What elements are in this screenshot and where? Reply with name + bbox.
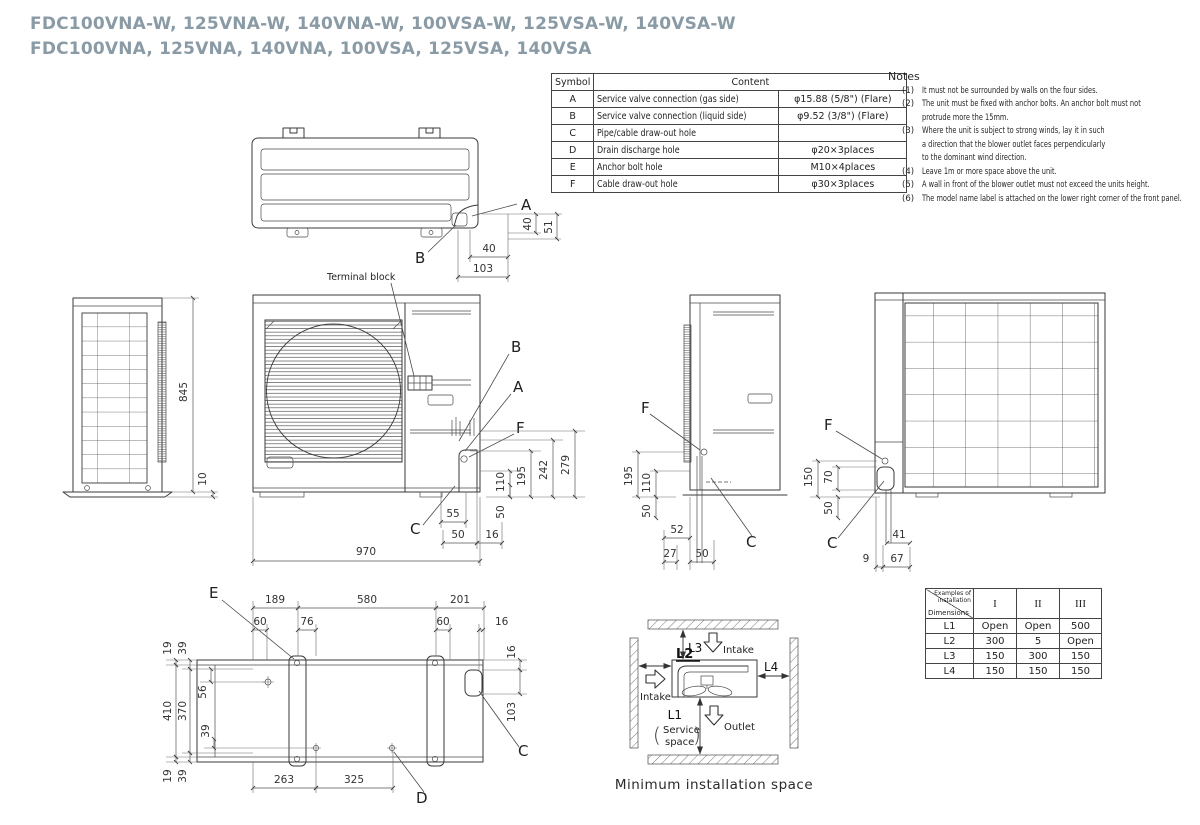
installation-table: Examples of installation Dimensions I II…	[925, 588, 1102, 679]
dim-150: 150	[803, 467, 815, 487]
dim-51: 51	[543, 220, 555, 233]
service-space-label-2: space	[665, 737, 694, 748]
value-cell: 300	[974, 634, 1017, 649]
dim-76: 76	[300, 616, 314, 628]
value-cell: 150	[1060, 649, 1102, 664]
outlet-arrow-icon	[705, 706, 723, 725]
top-tab-left	[283, 128, 304, 138]
left-side-view: 845 10	[63, 298, 218, 497]
notes-title: Notes	[888, 70, 1200, 84]
right-side-view: F C 195 110 50 52 27 50	[623, 295, 787, 570]
table-row: E Anchor bolt hole M10×4places	[552, 159, 907, 176]
value-cell: Open	[974, 619, 1017, 634]
dim-52: 52	[670, 524, 683, 536]
side-grille	[82, 313, 147, 483]
dim-410: 410	[162, 701, 174, 721]
dim-50: 50	[641, 504, 653, 517]
value-cell: 150	[1017, 664, 1060, 679]
content-cell: Pipe/cable draw-out hole	[594, 125, 779, 142]
wall-top	[648, 620, 778, 629]
content-col-header: Content	[594, 74, 907, 91]
outlet-label: Outlet	[724, 722, 755, 733]
col-header-1: I	[974, 589, 1017, 619]
top-tab-right	[419, 128, 440, 138]
label-f: F	[641, 399, 650, 417]
dim-580: 580	[357, 594, 377, 606]
fan-blade	[707, 684, 732, 697]
symbol-col-header: Symbol	[552, 74, 594, 91]
dim-103: 103	[473, 263, 493, 275]
dim-279: 279	[560, 455, 572, 475]
label-b: B	[511, 338, 521, 356]
table-row: L2 300 5 Open	[926, 634, 1102, 649]
corner-bottom-label: Dimensions	[928, 609, 969, 617]
bottom-body	[197, 660, 483, 762]
corner-top-label2: installation	[938, 597, 971, 604]
symbol-cell: A	[552, 91, 594, 108]
dim-60a: 60	[253, 616, 266, 628]
dim-10: 10	[197, 472, 209, 485]
label-l3: L3	[688, 641, 702, 655]
dim-263: 263	[274, 774, 294, 786]
label-a: A	[521, 196, 532, 214]
service-paren-open: (	[653, 723, 661, 747]
intake-left-arrow-icon	[646, 670, 665, 688]
fan-grille	[265, 320, 402, 462]
dim-50v: 50	[495, 505, 507, 518]
note-item: (2) The unit must be fixed with anchor b…	[888, 98, 1200, 125]
notes: Notes (1) It must not be surrounded by w…	[888, 70, 1200, 206]
dim-39t: 39	[177, 641, 189, 654]
table-row: L4 150 150 150	[926, 664, 1102, 679]
service-paren-close: )	[693, 723, 701, 747]
rear-view: F C 150 70 50 41 9 67	[803, 293, 1105, 572]
fan-blade	[681, 684, 706, 697]
installation-space-diagram: L2 L3 L4 L1 Intake Intake Outlet ( Servi…	[615, 620, 813, 793]
top-view: A B 40 103 40 51	[252, 128, 562, 282]
dim-370: 370	[177, 701, 189, 721]
note-item: (4) Leave 1m or more space above the uni…	[888, 166, 1200, 180]
label-l4: L4	[764, 660, 778, 674]
dim-242: 242	[538, 460, 550, 480]
installation-space-caption: Minimum installation space	[615, 777, 813, 793]
dim-39b: 39	[177, 769, 189, 782]
corner-cell: Examples of installation Dimensions	[926, 589, 974, 619]
cable-hole-f	[701, 449, 707, 455]
label-b: B	[415, 249, 425, 267]
cable-hole-f	[461, 456, 467, 462]
front-view: Terminal block B A F C 110 50 195 242 27…	[253, 272, 585, 566]
table-row: B Service valve connection (liquid side)…	[552, 108, 907, 125]
fan-motor	[701, 676, 713, 685]
label-l1: L1	[668, 708, 682, 722]
wall-bottom	[648, 755, 778, 764]
dim-325: 325	[344, 774, 364, 786]
value-cell: Open	[1017, 619, 1060, 634]
base-plate	[63, 492, 172, 497]
dim-16r: 16	[506, 645, 518, 659]
side-fin	[158, 322, 166, 462]
dim-110: 110	[641, 473, 653, 493]
dim-41: 41	[892, 529, 905, 541]
dim-16: 16	[485, 529, 499, 541]
table-row: A Service valve connection (gas side) φ1…	[552, 91, 907, 108]
dim-195: 195	[623, 466, 635, 486]
symbol-cell: B	[552, 108, 594, 125]
dim-103r: 103	[506, 702, 518, 722]
label-e: E	[209, 584, 218, 602]
col-header-3: III	[1060, 589, 1102, 619]
dim-40-v: 40	[522, 217, 534, 230]
col-header-2: II	[1017, 589, 1060, 619]
dim-19t: 19	[162, 641, 174, 654]
symbol-table: Symbol Content A Service valve connectio…	[551, 73, 907, 193]
foot-rail-left	[289, 656, 306, 766]
dim-195: 195	[516, 466, 528, 486]
dim-189: 189	[265, 594, 285, 606]
note-item: (3) Where the unit is subject to strong …	[888, 125, 1200, 166]
intake-top-label: Intake	[723, 645, 754, 656]
table-row: F Cable draw-out hole φ30×3places	[552, 176, 907, 193]
dim-19b: 19	[162, 769, 174, 782]
label-c: C	[746, 533, 756, 551]
dim-201: 201	[450, 594, 470, 606]
dim-67: 67	[890, 553, 903, 565]
cable-hole-f	[882, 458, 888, 464]
content-cell: Service valve connection (gas side)	[594, 91, 779, 108]
dim-60b: 60	[436, 616, 449, 628]
wall-left	[630, 638, 638, 748]
side2-base	[683, 490, 787, 495]
dim-50b: 50	[451, 529, 464, 541]
foot-rail-right	[427, 656, 444, 766]
label-d: D	[416, 789, 428, 807]
note-item: (6) The model name label is attached on …	[888, 193, 1200, 207]
label-f: F	[824, 416, 833, 434]
dim-16t: 16	[495, 616, 509, 628]
content-cell: Drain discharge hole	[594, 142, 779, 159]
content-cell: Service valve connection (liquid side)	[594, 108, 779, 125]
symbol-cell: D	[552, 142, 594, 159]
intake-top-arrow-icon	[704, 633, 722, 652]
label-f: F	[516, 419, 525, 437]
value-cell: 150	[974, 664, 1017, 679]
dim-40-h: 40	[482, 243, 495, 255]
dim-970: 970	[356, 546, 376, 558]
label-a: A	[513, 378, 524, 396]
dim-110: 110	[495, 472, 507, 492]
row-label: L3	[926, 649, 974, 664]
value-cell: 500	[1060, 619, 1102, 634]
dim-55: 55	[446, 508, 459, 520]
value-cell: 300	[1017, 649, 1060, 664]
symbol-cell: E	[552, 159, 594, 176]
row-label: L2	[926, 634, 974, 649]
table-row: C Pipe/cable draw-out hole	[552, 125, 907, 142]
note-item: (5) A wall in front of the blower outlet…	[888, 179, 1200, 193]
rear-grille	[905, 303, 1098, 487]
corner-top-label: Examples of	[934, 590, 971, 597]
value-cell: Open	[1060, 634, 1102, 649]
table-row: L3 150 300 150	[926, 649, 1102, 664]
wall-right	[790, 638, 798, 748]
dim-50b: 50	[695, 548, 708, 560]
row-label: L1	[926, 619, 974, 634]
dim-9: 9	[863, 553, 870, 565]
dim-50: 50	[823, 501, 835, 514]
dim-56: 56	[197, 685, 209, 699]
dim-39m: 39	[200, 724, 212, 737]
table-row: L1 Open Open 500	[926, 619, 1102, 634]
value-cell: 150	[1060, 664, 1102, 679]
content-cell: Cable draw-out hole	[594, 176, 779, 193]
dim-845: 845	[178, 382, 190, 402]
side2-body	[690, 295, 780, 490]
terminal-block-label: Terminal block	[326, 272, 396, 283]
label-c: C	[518, 742, 528, 760]
value-cell: 5	[1017, 634, 1060, 649]
dim-70: 70	[823, 470, 835, 483]
symbol-cell: C	[552, 125, 594, 142]
row-label: L4	[926, 664, 974, 679]
dim-27: 27	[663, 548, 676, 560]
intake-left-label: Intake	[640, 692, 671, 703]
note-item: (1) It must not be surrounded by walls o…	[888, 85, 1200, 99]
symbol-cell: F	[552, 176, 594, 193]
value-cell: 150	[974, 649, 1017, 664]
content-cell: Anchor bolt hole	[594, 159, 779, 176]
bottom-view: E D C 189 580 201 60 76 60 16	[162, 584, 528, 807]
top-view-body	[252, 138, 478, 228]
table-row: D Drain discharge hole φ20×3places	[552, 142, 907, 159]
label-c: C	[410, 520, 420, 538]
label-c: C	[827, 534, 837, 552]
